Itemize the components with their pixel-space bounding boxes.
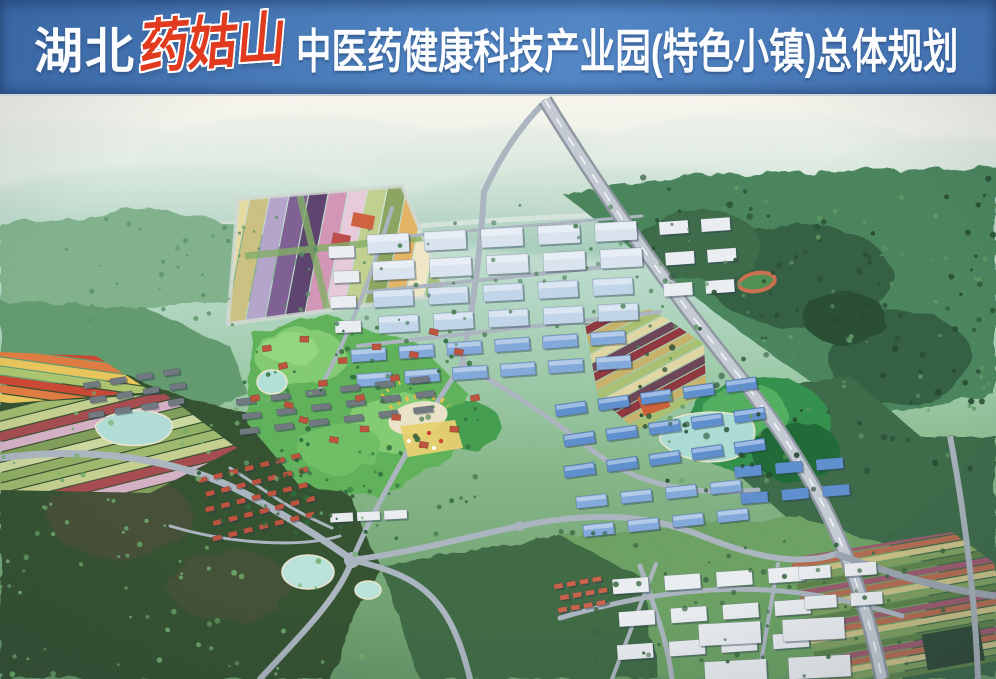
banner-title-text: 中医药健康科技产业园(特色小镇)总体规划 [296, 13, 958, 82]
planning-billboard: 湖北 药姑山 中医药健康科技产业园(特色小镇)总体规划 [0, 0, 996, 679]
vignette [0, 96, 996, 679]
banner-region-text: 湖北 [34, 12, 136, 83]
masterplan-rendering [0, 96, 996, 679]
title-banner: 湖北 药姑山 中医药健康科技产业园(特色小镇)总体规划 [0, 0, 996, 96]
banner-brand-calligraphy: 药姑山 [137, 0, 290, 85]
